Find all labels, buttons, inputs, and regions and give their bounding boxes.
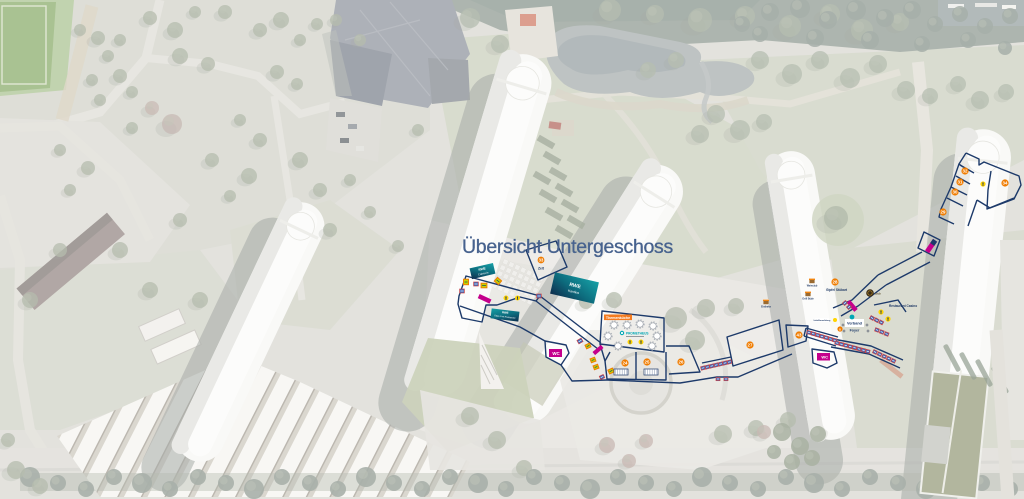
svg-text:Gipfel Stübart: Gipfel Stübart <box>826 288 848 292</box>
svg-text:Restaurant Casino: Restaurant Casino <box>889 304 917 308</box>
svg-text:WC: WC <box>552 351 560 356</box>
svg-text:24: 24 <box>623 361 628 366</box>
svg-text:club: club <box>875 292 881 296</box>
svg-text:Info/Anmeldung: Info/Anmeldung <box>814 319 831 322</box>
svg-text:30: 30 <box>953 190 958 195</box>
svg-text:B: B <box>839 327 841 331</box>
svg-text:29: 29 <box>941 210 946 215</box>
svg-text:Themenküche: Themenküche <box>606 316 630 320</box>
svg-text:28: 28 <box>833 280 838 285</box>
svg-text:PROMETHEUS: PROMETHEUS <box>626 331 649 335</box>
svg-text:Foyer: Foyer <box>850 329 860 333</box>
svg-text:25: 25 <box>645 360 650 365</box>
svg-text:WC: WC <box>821 354 828 359</box>
svg-text:Verband: Verband <box>847 322 863 326</box>
svg-text:Weinclub: Weinclub <box>807 284 818 287</box>
svg-text:Übersicht Untergeschoss: Übersicht Untergeschoss <box>462 236 673 258</box>
svg-text:Grill Büde: Grill Büde <box>802 297 814 300</box>
svg-text:34: 34 <box>1003 181 1008 186</box>
svg-text:Zelt: Zelt <box>538 267 545 271</box>
svg-text:31: 31 <box>958 180 963 185</box>
svg-text:43: 43 <box>797 333 802 338</box>
svg-text:26: 26 <box>679 360 684 365</box>
svg-text:33: 33 <box>539 258 544 263</box>
svg-text:32: 32 <box>963 169 968 174</box>
svg-text:Eistheke: Eistheke <box>761 305 772 308</box>
svg-text:27: 27 <box>748 343 753 348</box>
svg-text:RWE: RWE <box>502 310 509 315</box>
